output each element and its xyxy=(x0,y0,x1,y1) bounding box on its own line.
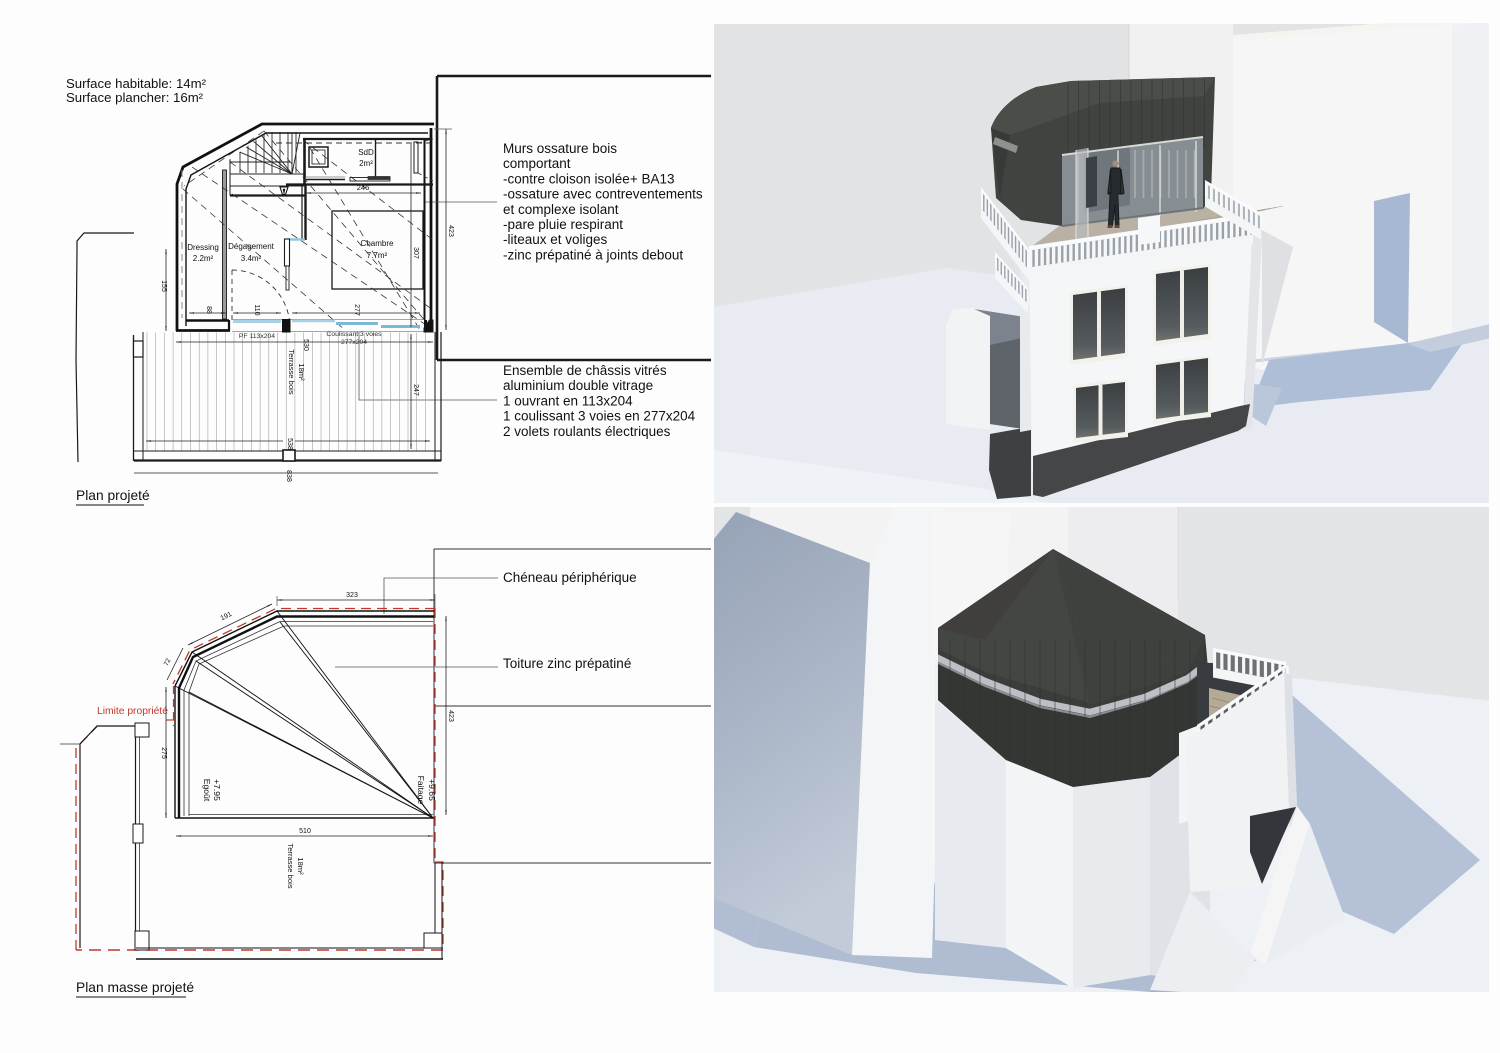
svg-text:+7.95: +7.95 xyxy=(212,779,222,801)
svg-text:423: 423 xyxy=(447,225,454,237)
svg-text:Dressing: Dressing xyxy=(187,243,219,252)
svg-text:838: 838 xyxy=(285,470,292,482)
svg-text:Murs ossature bois: Murs ossature bois xyxy=(503,141,617,156)
svg-text:Egoût: Egoût xyxy=(202,779,212,802)
svg-text:Chéneau périphérique: Chéneau périphérique xyxy=(503,570,637,585)
svg-text:aluminium double vitrage: aluminium double vitrage xyxy=(503,378,653,393)
svg-text:277: 277 xyxy=(353,304,360,316)
svg-text:-contre cloison isolée+ BA13: -contre cloison isolée+ BA13 xyxy=(503,171,674,186)
svg-text:191: 191 xyxy=(220,611,234,622)
svg-text:Surface plancher: 16m²: Surface plancher: 16m² xyxy=(66,90,204,105)
svg-text:247: 247 xyxy=(412,384,419,396)
svg-text:-liteaux et voliges: -liteaux et voliges xyxy=(503,232,608,247)
svg-text:-ossature avec contreventement: -ossature avec contreventements xyxy=(503,187,703,202)
svg-text:PF 113x204: PF 113x204 xyxy=(239,333,275,340)
svg-text:277x204: 277x204 xyxy=(341,339,367,346)
svg-text:307: 307 xyxy=(412,247,419,259)
svg-text:Plan masse projeté: Plan masse projeté xyxy=(76,980,194,995)
svg-text:3.4m²: 3.4m² xyxy=(241,254,262,263)
svg-text:1 coulissant 3 voies en 277x20: 1 coulissant 3 voies en 277x204 xyxy=(503,409,696,424)
svg-text:510: 510 xyxy=(299,828,311,835)
svg-text:-pare pluie respirant: -pare pluie respirant xyxy=(503,217,623,232)
svg-text:2.2m²: 2.2m² xyxy=(193,254,214,263)
svg-text:2m²: 2m² xyxy=(359,159,373,168)
svg-text:530: 530 xyxy=(302,339,309,351)
svg-text:246: 246 xyxy=(357,183,370,192)
svg-text:Faitage: Faitage xyxy=(416,776,426,805)
svg-text:comportant: comportant xyxy=(503,156,571,171)
svg-text:7.7m²: 7.7m² xyxy=(367,251,388,260)
svg-text:Limite propriété: Limite propriété xyxy=(97,706,168,717)
svg-text:2 volets roulants électriques: 2 volets roulants électriques xyxy=(503,424,671,439)
svg-text:et complexe isolant: et complexe isolant xyxy=(503,202,619,217)
svg-text:72: 72 xyxy=(163,657,173,667)
svg-text:18m²: 18m² xyxy=(296,857,305,875)
svg-text:+9.65: +9.65 xyxy=(427,779,437,801)
svg-text:Surface habitable: 14m²: Surface habitable: 14m² xyxy=(66,76,207,91)
svg-text:Plan projeté: Plan projeté xyxy=(76,488,150,503)
svg-text:155: 155 xyxy=(160,280,167,292)
svg-text:Chambre: Chambre xyxy=(361,239,394,248)
svg-text:Toiture zinc prépatiné: Toiture zinc prépatiné xyxy=(503,656,631,671)
svg-text:SdD: SdD xyxy=(358,148,374,157)
svg-text:538: 538 xyxy=(286,438,293,450)
svg-text:Ensemble de châssis vitrés: Ensemble de châssis vitrés xyxy=(503,363,667,378)
svg-text:1 ouvrant en 113x204: 1 ouvrant en 113x204 xyxy=(503,393,633,408)
svg-text:323: 323 xyxy=(346,592,358,599)
svg-text:88: 88 xyxy=(205,306,212,314)
svg-text:275: 275 xyxy=(160,747,167,759)
svg-text:18m²: 18m² xyxy=(297,363,306,381)
svg-text:110: 110 xyxy=(253,304,260,315)
svg-text:Terrasse bois: Terrasse bois xyxy=(287,349,296,394)
svg-text:423: 423 xyxy=(447,710,454,722)
svg-text:Dégagement: Dégagement xyxy=(228,242,275,251)
svg-text:Coulissant 3 voies: Coulissant 3 voies xyxy=(326,331,382,338)
svg-text:Terrasse bois: Terrasse bois xyxy=(286,843,295,888)
svg-text:-zinc prépatiné à joints debou: -zinc prépatiné à joints debout xyxy=(503,247,683,262)
